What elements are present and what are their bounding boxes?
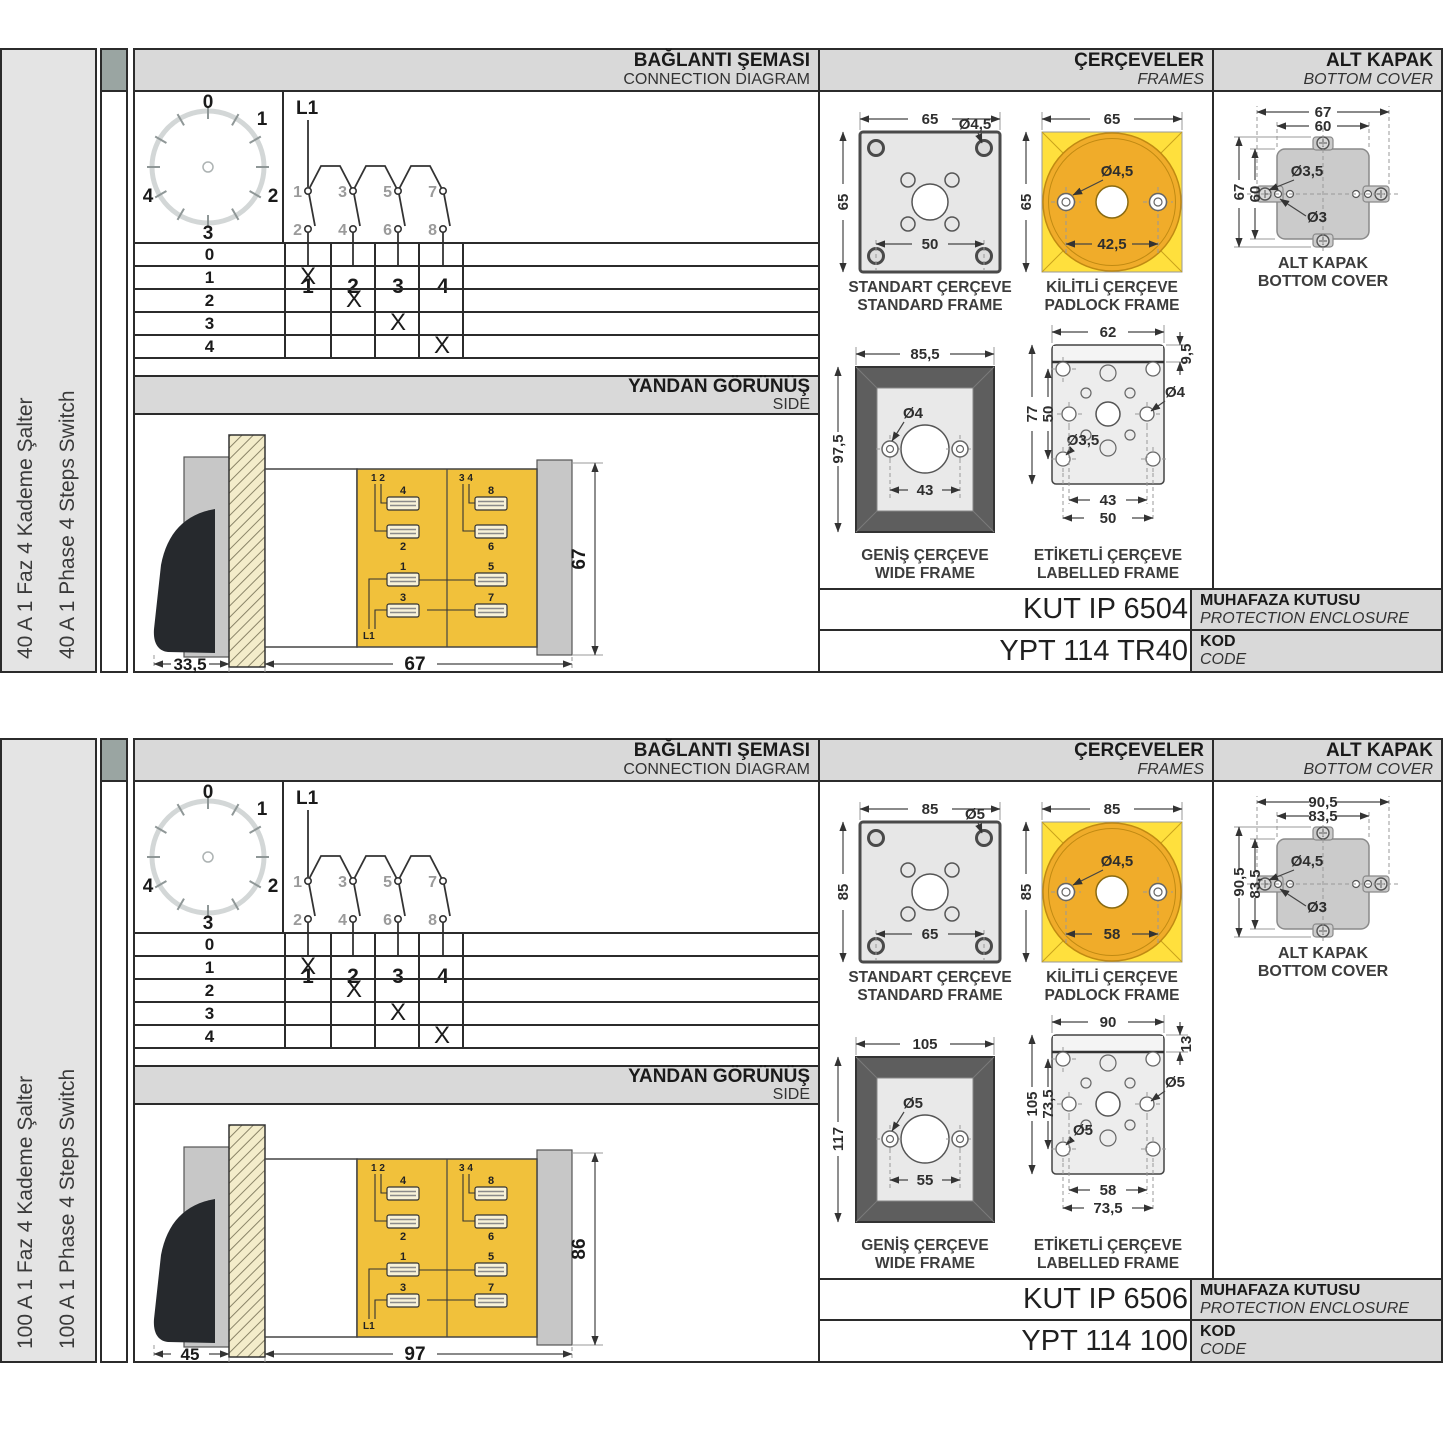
dial-pos-3: 3 bbox=[203, 223, 214, 244]
contact-mark: X bbox=[332, 978, 376, 1002]
labelled-frame-drawing: 90 13 105 73,5 Ø5 Ø5 58 bbox=[1024, 1014, 1195, 1272]
bus-links bbox=[308, 856, 443, 881]
header-connection-diagram: BAĞLANTI ŞEMASI CONNECTION DIAGRAM bbox=[135, 740, 810, 780]
enclosure-label-en: PROTECTION ENCLOSURE bbox=[1200, 610, 1441, 628]
svg-text:83,5: 83,5 bbox=[1247, 869, 1264, 898]
table-gridline bbox=[330, 934, 332, 1049]
header-side-en: SIDE bbox=[135, 397, 810, 413]
svg-text:67: 67 bbox=[1231, 184, 1248, 201]
header-side-tr: YANDAN GÖRÜNÜŞ bbox=[135, 377, 810, 397]
svg-text:67: 67 bbox=[569, 548, 590, 569]
table-gridline bbox=[284, 934, 286, 1049]
wide-frame-caption-tr: GENİŞ ÇERÇEVE bbox=[861, 1237, 988, 1254]
svg-text:85: 85 bbox=[835, 884, 852, 901]
padlock-frame-drawing: 65 65 Ø4,5 42,5 KİLİTLİ ÇERÇEVE PADLOCK … bbox=[1018, 111, 1182, 314]
svg-text:Ø5: Ø5 bbox=[1073, 1122, 1093, 1139]
svg-text:Ø4: Ø4 bbox=[1165, 384, 1186, 401]
product-label-turkish: 40 A 1 Faz 4 Kademe Şalter bbox=[14, 398, 38, 660]
dial-pos-1: 1 bbox=[257, 109, 268, 130]
side-view-drawing: 1 2 3 4 4 2 8 6 1 3 5 7 L1 bbox=[135, 1107, 818, 1361]
svg-text:85: 85 bbox=[922, 801, 939, 818]
product-label-english: 40 A 1 Phase 4 Steps Switch bbox=[56, 390, 80, 659]
terminal-pair-label: 1 2 bbox=[371, 473, 385, 484]
contact-table: 0 1 X 2 X 3 bbox=[135, 244, 818, 359]
standard-frame-caption-en: STANDARD FRAME bbox=[857, 297, 1002, 314]
datasheet-body: BAĞLANTI ŞEMASI CONNECTION DIAGRAM ÇERÇE… bbox=[133, 48, 1443, 673]
catalog-page: 40 A 1 Faz 4 Kademe Şalter 40 A 1 Phase … bbox=[0, 0, 1445, 1445]
table-row: 1 X bbox=[135, 957, 818, 980]
svg-text:Ø4,5: Ø4,5 bbox=[1291, 853, 1324, 870]
padlock-frame-caption-tr: KİLİTLİ ÇERÇEVE bbox=[1046, 279, 1178, 296]
terminal-label: 1 bbox=[293, 184, 302, 201]
svg-text:50: 50 bbox=[922, 236, 939, 253]
svg-text:Ø4,5: Ø4,5 bbox=[1101, 163, 1134, 180]
wide-frame-drawing: 85,5 97,5 Ø4 43 GENİŞ ÇERÇEVE WIDE FRAME bbox=[830, 346, 994, 582]
bottom-cover-drawing: 90,5 83,5 90,5 83,5 Ø4,5 Ø3 ALT KAPAK BO… bbox=[1214, 782, 1441, 1082]
back-plate bbox=[537, 1150, 572, 1345]
step-label: 2 bbox=[135, 290, 284, 311]
standard-frame-drawing: 65 Ø4,5 65 50 STANDART ÇERÇEVE STANDARD … bbox=[835, 111, 1012, 314]
header-frames-tr: ÇERÇEVELER bbox=[818, 741, 1204, 761]
svg-text:33,5: 33,5 bbox=[173, 655, 206, 674]
datasheet-body: BAĞLANTI ŞEMASI CONNECTION DIAGRAM ÇERÇE… bbox=[133, 738, 1443, 1363]
binder-strip-tab bbox=[102, 50, 126, 92]
contact-mark: X bbox=[376, 311, 420, 335]
terminal-pair-label: 1 2 bbox=[371, 1163, 385, 1174]
step-label: 1 bbox=[135, 267, 284, 288]
circuit-feed-label: L1 bbox=[296, 788, 319, 809]
switch-housing bbox=[265, 469, 357, 647]
enclosure-code: KUT IP 6506 bbox=[820, 1280, 1188, 1319]
svg-text:5: 5 bbox=[488, 561, 494, 573]
labelled-frame-caption-en: LABELLED FRAME bbox=[1037, 1255, 1179, 1272]
terminal-label: 1 bbox=[293, 874, 302, 891]
header-cover-tr: ALT KAPAK bbox=[1212, 741, 1433, 761]
cover-caption-en: BOTTOM COVER bbox=[1258, 963, 1389, 980]
header-cover-en: BOTTOM COVER bbox=[1212, 71, 1433, 88]
product-section: 40 A 1 Faz 4 Kademe Şalter 40 A 1 Phase … bbox=[0, 48, 1445, 675]
svg-text:9,5: 9,5 bbox=[1178, 344, 1195, 365]
svg-text:Ø5: Ø5 bbox=[903, 1095, 923, 1112]
svg-text:7: 7 bbox=[488, 1282, 494, 1294]
frames-drawings: 85 Ø5 85 65 STANDART ÇERÇEVE STANDARD FR… bbox=[820, 782, 1212, 1278]
svg-text:42,5: 42,5 bbox=[1097, 236, 1126, 253]
dial-pos-1: 1 bbox=[257, 799, 268, 820]
table-row: 0 bbox=[135, 244, 818, 267]
padlock-frame-drawing: 85 85 Ø4,5 58 KİLİTLİ ÇERÇEVE PADLOCK FR… bbox=[1018, 801, 1182, 1004]
wide-frame-caption-en: WIDE FRAME bbox=[875, 565, 975, 582]
step-label: 1 bbox=[135, 957, 284, 978]
svg-text:6: 6 bbox=[488, 1231, 494, 1243]
labelled-frame-caption-en: LABELLED FRAME bbox=[1037, 565, 1179, 582]
svg-text:65: 65 bbox=[922, 926, 939, 943]
table-gridline bbox=[330, 244, 332, 359]
terminal-label: 3 bbox=[338, 184, 347, 201]
svg-text:117: 117 bbox=[830, 1127, 847, 1151]
svg-text:55: 55 bbox=[917, 1172, 934, 1189]
svg-text:45: 45 bbox=[181, 1345, 200, 1364]
enclosure-label-en: PROTECTION ENCLOSURE bbox=[1200, 1300, 1441, 1318]
header-frames-tr: ÇERÇEVELER bbox=[818, 51, 1204, 71]
header-cover-en: BOTTOM COVER bbox=[1212, 761, 1433, 778]
svg-text:5: 5 bbox=[488, 1251, 494, 1263]
svg-text:90,5: 90,5 bbox=[1231, 867, 1248, 896]
svg-text:3: 3 bbox=[400, 592, 406, 604]
header-connection-tr: BAĞLANTI ŞEMASI bbox=[135, 741, 810, 761]
contact-mark: X bbox=[420, 1024, 464, 1048]
svg-text:13: 13 bbox=[1178, 1036, 1195, 1053]
table-gridline bbox=[284, 244, 286, 359]
product-label-turkish: 100 A 1 Faz 4 Kademe Şalter bbox=[14, 1076, 38, 1349]
table-gridline bbox=[462, 934, 464, 1049]
header-connection-diagram: BAĞLANTI ŞEMASI CONNECTION DIAGRAM bbox=[135, 50, 810, 90]
contact-mark: X bbox=[376, 1001, 420, 1025]
svg-text:3: 3 bbox=[400, 1282, 406, 1294]
terminal-label: 8 bbox=[428, 912, 437, 929]
table-row: 3 X bbox=[135, 313, 818, 336]
code-label-tr: KOD bbox=[1200, 1323, 1441, 1341]
svg-text:105: 105 bbox=[1024, 1091, 1041, 1116]
contact-table: 0 1 X 2 X 3 bbox=[135, 934, 818, 1049]
product-code: YPT 114 100 bbox=[820, 1321, 1188, 1361]
svg-text:65: 65 bbox=[922, 111, 939, 128]
step-label: 4 bbox=[135, 336, 284, 357]
terminal-label: 4 bbox=[338, 912, 347, 929]
svg-text:Ø3,5: Ø3,5 bbox=[1067, 432, 1100, 449]
svg-text:65: 65 bbox=[1104, 111, 1121, 128]
table-row: 4 X bbox=[135, 336, 818, 359]
table-gridline bbox=[374, 244, 376, 359]
enclosure-label-tr: MUHAFAZA KUTUSU bbox=[1200, 592, 1441, 610]
svg-text:105: 105 bbox=[912, 1036, 937, 1053]
wide-frame-caption-en: WIDE FRAME bbox=[875, 1255, 975, 1272]
step-label: 0 bbox=[135, 244, 284, 265]
svg-text:4: 4 bbox=[400, 1175, 407, 1187]
wide-frame-caption-tr: GENİŞ ÇERÇEVE bbox=[861, 547, 988, 564]
svg-text:97: 97 bbox=[404, 1344, 425, 1365]
svg-text:85: 85 bbox=[1104, 801, 1121, 818]
svg-text:1: 1 bbox=[400, 561, 406, 573]
labelled-frame-caption-tr: ETİKETLİ ÇERÇEVE bbox=[1034, 1237, 1182, 1254]
dial-pos-4: 4 bbox=[143, 876, 154, 897]
dial-pos-0: 0 bbox=[203, 782, 214, 803]
contact-mark: X bbox=[420, 334, 464, 358]
svg-text:65: 65 bbox=[835, 194, 852, 211]
header-bottom-cover: ALT KAPAK BOTTOM COVER bbox=[1212, 50, 1433, 90]
table-row: 3 X bbox=[135, 1003, 818, 1026]
back-plate bbox=[537, 460, 572, 655]
binder-strip bbox=[100, 738, 128, 1363]
header-side-tr: YANDAN GÖRÜNÜŞ bbox=[135, 1067, 810, 1087]
rotary-dial-diagram: 0 1 2 3 4 bbox=[135, 782, 282, 932]
product-label-box: 100 A 1 Faz 4 Kademe Şalter 100 A 1 Phas… bbox=[0, 738, 97, 1363]
binder-strip-tab bbox=[102, 740, 126, 782]
table-row: 1 X bbox=[135, 267, 818, 290]
svg-text:73,5: 73,5 bbox=[1040, 1089, 1057, 1118]
step-label: 2 bbox=[135, 980, 284, 1001]
enclosure-label-tr: MUHAFAZA KUTUSU bbox=[1200, 1282, 1441, 1300]
svg-text:60: 60 bbox=[1315, 118, 1332, 135]
svg-text:7: 7 bbox=[488, 592, 494, 604]
svg-text:86: 86 bbox=[569, 1238, 590, 1259]
svg-text:Ø4: Ø4 bbox=[903, 405, 924, 422]
svg-text:Ø5: Ø5 bbox=[965, 806, 985, 823]
header-connection-tr: BAĞLANTI ŞEMASI bbox=[135, 51, 810, 71]
terminal-label: 7 bbox=[428, 874, 437, 891]
svg-text:58: 58 bbox=[1104, 926, 1121, 943]
svg-text:Ø3,5: Ø3,5 bbox=[1291, 163, 1324, 180]
code-label-cell: KOD CODE bbox=[1192, 631, 1441, 671]
dim-height: 86 bbox=[569, 1153, 603, 1345]
svg-text:83,5: 83,5 bbox=[1308, 808, 1337, 825]
dial-center bbox=[203, 162, 213, 172]
svg-text:67: 67 bbox=[404, 654, 425, 675]
step-label: 3 bbox=[135, 1003, 284, 1024]
product-label-box: 40 A 1 Faz 4 Kademe Şalter 40 A 1 Phase … bbox=[0, 48, 97, 673]
svg-text:62: 62 bbox=[1100, 324, 1117, 341]
svg-text:50: 50 bbox=[1100, 510, 1117, 527]
header-frames-en: FRAMES bbox=[818, 71, 1204, 88]
svg-text:8: 8 bbox=[488, 485, 494, 497]
svg-text:50: 50 bbox=[1040, 406, 1057, 423]
switch-circuit-diagram: L1 1 2 1 3 4 2 5 6 bbox=[284, 782, 818, 932]
svg-text:Ø3: Ø3 bbox=[1307, 209, 1327, 226]
codes-vertical-divider bbox=[1190, 1280, 1192, 1361]
step-label: 0 bbox=[135, 934, 284, 955]
cover-caption-tr: ALT KAPAK bbox=[1278, 255, 1369, 272]
svg-text:2: 2 bbox=[400, 541, 406, 553]
terminal-label: 7 bbox=[428, 184, 437, 201]
switch-handle bbox=[154, 1199, 215, 1343]
svg-text:43: 43 bbox=[1100, 492, 1117, 509]
code-label-en: CODE bbox=[1200, 1341, 1441, 1359]
terminal-label: 2 bbox=[293, 912, 302, 929]
table-row: 2 X bbox=[135, 290, 818, 313]
feed-label: L1 bbox=[363, 631, 375, 642]
dial-pos-4: 4 bbox=[143, 186, 154, 207]
svg-text:4: 4 bbox=[400, 485, 407, 497]
contact-mark: X bbox=[332, 288, 376, 312]
terminal-label: 6 bbox=[383, 912, 392, 929]
svg-text:Ø4,5: Ø4,5 bbox=[959, 116, 992, 133]
padlock-frame-caption-tr: KİLİTLİ ÇERÇEVE bbox=[1046, 969, 1178, 986]
dim-height: 67 bbox=[569, 463, 603, 655]
bottom-cover-drawing: 67 60 67 60 Ø3,5 Ø3 ALT KAPAK BOTTOM COV… bbox=[1214, 92, 1441, 392]
svg-text:2: 2 bbox=[400, 1231, 406, 1243]
header-bottom-cover: ALT KAPAK BOTTOM COVER bbox=[1212, 740, 1433, 780]
terminal-label: 3 bbox=[338, 874, 347, 891]
terminal-label: 2 bbox=[293, 222, 302, 239]
svg-text:65: 65 bbox=[1018, 194, 1035, 211]
terminal-label: 8 bbox=[428, 222, 437, 239]
terminal-label: 5 bbox=[383, 184, 392, 201]
product-code: YPT 114 TR40 bbox=[820, 631, 1188, 671]
dial-pos-2: 2 bbox=[268, 876, 279, 897]
standard-frame-drawing: 85 Ø5 85 65 STANDART ÇERÇEVE STANDARD FR… bbox=[835, 801, 1012, 1004]
table-row: 4 X bbox=[135, 1026, 818, 1049]
svg-text:Ø3: Ø3 bbox=[1307, 899, 1327, 916]
dial-center bbox=[203, 852, 213, 862]
standard-frame-caption-tr: STANDART ÇERÇEVE bbox=[848, 279, 1011, 296]
rotary-dial-diagram: 0 1 2 3 4 bbox=[135, 92, 282, 242]
switch-circuit-diagram: L1 1 2 1 3 4 2 5 6 bbox=[284, 92, 818, 242]
contact-mark: X bbox=[286, 955, 330, 979]
switch-handle bbox=[154, 509, 215, 653]
header-side-view: YANDAN GÖRÜNÜŞ SIDE bbox=[135, 375, 818, 415]
table-row: 0 bbox=[135, 934, 818, 957]
svg-text:Ø4,5: Ø4,5 bbox=[1101, 853, 1134, 870]
standard-frame-caption-en: STANDARD FRAME bbox=[857, 987, 1002, 1004]
svg-text:73,5: 73,5 bbox=[1093, 1200, 1122, 1217]
svg-text:58: 58 bbox=[1100, 1182, 1117, 1199]
circuit-feed-label: L1 bbox=[296, 98, 319, 119]
svg-text:1: 1 bbox=[400, 1251, 406, 1263]
step-label: 3 bbox=[135, 313, 284, 334]
enclosure-label-cell: MUHAFAZA KUTUSU PROTECTION ENCLOSURE bbox=[1192, 1280, 1441, 1319]
labelled-frame-caption-tr: ETİKETLİ ÇERÇEVE bbox=[1034, 547, 1182, 564]
terminal-label: 6 bbox=[383, 222, 392, 239]
svg-text:97,5: 97,5 bbox=[830, 434, 847, 463]
svg-text:85: 85 bbox=[1018, 884, 1035, 901]
header-frames-en: FRAMES bbox=[818, 761, 1204, 778]
table-row: 2 X bbox=[135, 980, 818, 1003]
svg-text:43: 43 bbox=[917, 482, 934, 499]
padlock-frame-caption-en: PADLOCK FRAME bbox=[1045, 987, 1180, 1004]
table-gridline bbox=[374, 934, 376, 1049]
terminal-label: 5 bbox=[383, 874, 392, 891]
switch-housing bbox=[265, 1159, 357, 1337]
svg-text:90: 90 bbox=[1100, 1014, 1117, 1031]
labelled-frame-drawing: 62 9,5 77 50 Ø4 Ø3,5 43 bbox=[1024, 324, 1195, 582]
step-label: 4 bbox=[135, 1026, 284, 1047]
dial-pos-3: 3 bbox=[203, 913, 214, 934]
product-section: 100 A 1 Faz 4 Kademe Şalter 100 A 1 Phas… bbox=[0, 738, 1445, 1365]
header-side-en: SIDE bbox=[135, 1087, 810, 1103]
padlock-frame-caption-en: PADLOCK FRAME bbox=[1045, 297, 1180, 314]
table-gridline bbox=[418, 934, 420, 1049]
svg-text:60: 60 bbox=[1247, 186, 1264, 203]
standard-frame-caption-tr: STANDART ÇERÇEVE bbox=[848, 969, 1011, 986]
header-frames: ÇERÇEVELER FRAMES bbox=[818, 740, 1204, 780]
mounting-panel bbox=[229, 1125, 265, 1357]
terminal-label: 4 bbox=[338, 222, 347, 239]
table-gridline bbox=[462, 244, 464, 359]
svg-text:Ø5: Ø5 bbox=[1165, 1074, 1185, 1091]
terminal-pair-label: 3 4 bbox=[459, 1163, 473, 1174]
enclosure-label-cell: MUHAFAZA KUTUSU PROTECTION ENCLOSURE bbox=[1192, 590, 1441, 629]
codes-vertical-divider bbox=[1190, 590, 1192, 671]
header-frames: ÇERÇEVELER FRAMES bbox=[818, 50, 1204, 90]
bus-links bbox=[308, 166, 443, 191]
enclosure-code: KUT IP 6504 bbox=[820, 590, 1188, 629]
feed-label: L1 bbox=[363, 1321, 375, 1332]
contact-mark: X bbox=[286, 265, 330, 289]
header-connection-en: CONNECTION DIAGRAM bbox=[135, 71, 810, 88]
header-cover-tr: ALT KAPAK bbox=[1212, 51, 1433, 71]
product-label-english: 100 A 1 Phase 4 Steps Switch bbox=[56, 1069, 80, 1349]
cover-caption-en: BOTTOM COVER bbox=[1258, 273, 1389, 290]
dial-pos-2: 2 bbox=[268, 186, 279, 207]
code-label-tr: KOD bbox=[1200, 633, 1441, 651]
frames-drawings: 65 Ø4,5 65 50 STANDART ÇERÇEVE STANDARD … bbox=[820, 92, 1212, 588]
table-gridline bbox=[418, 244, 420, 359]
svg-text:6: 6 bbox=[488, 541, 494, 553]
header-connection-en: CONNECTION DIAGRAM bbox=[135, 761, 810, 778]
svg-text:8: 8 bbox=[488, 1175, 494, 1187]
dial-pos-0: 0 bbox=[203, 92, 214, 113]
side-view-drawing: 1 2 3 4 4 2 8 6 1 3 5 7 L1 bbox=[135, 417, 818, 671]
code-label-cell: KOD CODE bbox=[1192, 1321, 1441, 1361]
header-side-view: YANDAN GÖRÜNÜŞ SIDE bbox=[135, 1065, 818, 1105]
terminal-pair-label: 3 4 bbox=[459, 473, 473, 484]
cover-caption-tr: ALT KAPAK bbox=[1278, 945, 1369, 962]
wide-frame-drawing: 105 117 Ø5 55 GENİŞ ÇERÇEVE WIDE FRAME bbox=[830, 1036, 994, 1272]
mounting-panel bbox=[229, 435, 265, 667]
svg-text:85,5: 85,5 bbox=[910, 346, 939, 363]
svg-text:77: 77 bbox=[1024, 406, 1041, 423]
binder-strip bbox=[100, 48, 128, 673]
code-label-en: CODE bbox=[1200, 651, 1441, 669]
